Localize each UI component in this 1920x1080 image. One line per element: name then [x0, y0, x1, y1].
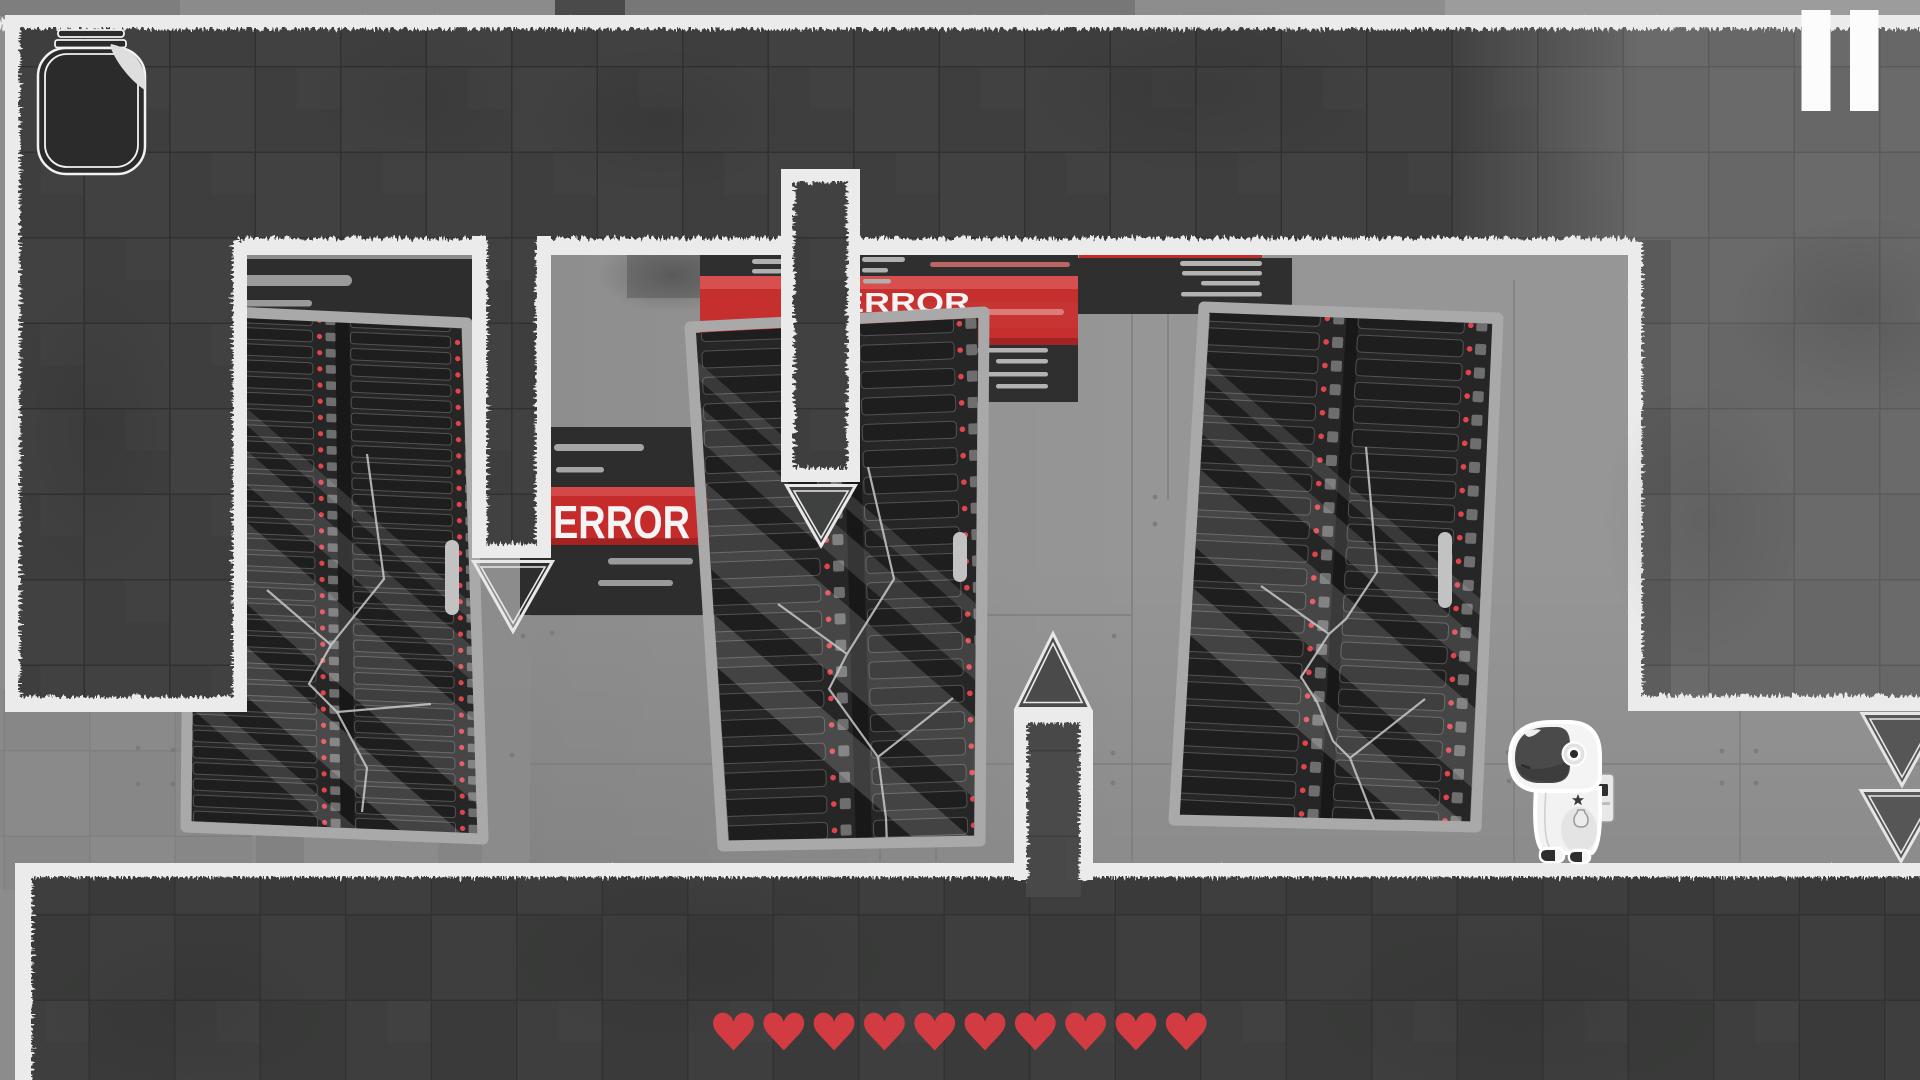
svg-text:ERROR: ERROR — [553, 496, 690, 548]
